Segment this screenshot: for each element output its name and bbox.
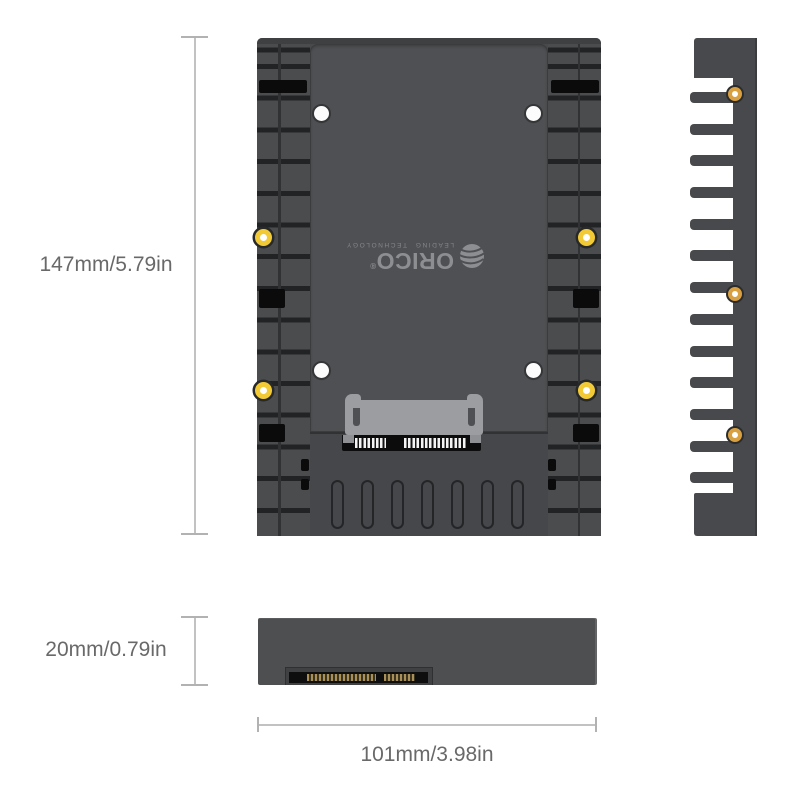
vent-slot xyxy=(259,80,307,93)
brand-name: ORICO® xyxy=(345,249,454,272)
front-view: ORICO® LEADING TECHNOLOGY xyxy=(257,38,601,536)
comb-slot xyxy=(481,480,494,529)
dimension-cap xyxy=(181,616,208,618)
sata-end-tab xyxy=(343,435,354,443)
vent-slot xyxy=(259,424,285,442)
vent-slot xyxy=(551,80,599,93)
dimension-line xyxy=(194,37,196,535)
mounting-hole-white xyxy=(526,106,541,121)
rib-tooth xyxy=(690,155,736,166)
left-mounting-rail xyxy=(257,44,310,536)
sata-end-tab xyxy=(470,435,481,443)
sata-pin-strip xyxy=(342,435,481,451)
thickness-dimension-label: 20mm/0.79in xyxy=(20,638,192,662)
sata-power-pins xyxy=(307,674,376,681)
mounting-hole-white xyxy=(526,363,541,378)
product-dimensions-diagram: ORICO® LEADING TECHNOLOGY xyxy=(0,0,800,800)
dimension-cap xyxy=(181,684,208,686)
vent-slot xyxy=(573,424,599,442)
vent-slot xyxy=(301,459,309,471)
comb-slot xyxy=(511,480,524,529)
brand-logo: ORICO® LEADING TECHNOLOGY xyxy=(343,238,485,274)
right-mounting-rail xyxy=(548,44,601,536)
side-view xyxy=(690,38,757,536)
height-dimension-label: 147mm/5.79in xyxy=(20,253,192,277)
dimension-line xyxy=(257,724,597,726)
rib-tooth xyxy=(690,187,736,198)
mounting-hole-white xyxy=(314,363,329,378)
screw-eyelet-gold xyxy=(728,428,742,442)
sata-connector-recess xyxy=(285,667,433,685)
screw-eyelet-gold xyxy=(578,229,595,246)
sata-latch-notch xyxy=(468,408,475,426)
screw-eyelet-gold xyxy=(728,87,742,101)
sata-latch-notch xyxy=(353,408,360,426)
brand-tagline: LEADING TECHNOLOGY xyxy=(345,240,454,247)
rib-tooth xyxy=(690,346,736,357)
rib-tooth xyxy=(690,219,736,230)
rib-tooth xyxy=(690,250,736,261)
mounting-hole-white xyxy=(314,106,329,121)
vent-slot xyxy=(259,289,285,308)
screw-eyelet-gold xyxy=(578,382,595,399)
vent-slot xyxy=(548,459,556,471)
rib-tooth xyxy=(690,377,736,388)
sata-data-pins xyxy=(355,438,386,448)
brand-text: ORICO® LEADING TECHNOLOGY xyxy=(345,240,454,272)
rib-tooth xyxy=(690,124,736,135)
rib-tooth xyxy=(690,472,736,483)
bottom-view xyxy=(258,618,597,685)
screw-eyelet-gold xyxy=(255,382,272,399)
comb-slot xyxy=(451,480,464,529)
vent-slot xyxy=(301,479,309,490)
registered-mark: ® xyxy=(370,261,376,270)
rib-tooth xyxy=(690,314,736,325)
comb-slot xyxy=(421,480,434,529)
comb-slot xyxy=(331,480,344,529)
dimension-cap xyxy=(595,717,597,732)
rib-tooth xyxy=(690,441,736,452)
width-dimension-label: 101mm/3.98in xyxy=(341,743,513,767)
dimension-cap xyxy=(257,717,259,732)
sata-pin-bar xyxy=(289,672,428,683)
dimension-line xyxy=(194,617,196,686)
vent-slot xyxy=(573,289,599,308)
rib-tooth xyxy=(690,409,736,420)
sata-data-pins xyxy=(384,674,415,681)
comb-slot xyxy=(391,480,404,529)
globe-icon xyxy=(459,243,485,269)
vent-slot xyxy=(548,479,556,490)
sata-power-pins xyxy=(404,438,466,448)
dimension-cap xyxy=(181,36,208,38)
comb-slot xyxy=(361,480,374,529)
dimension-cap xyxy=(181,533,208,535)
sata-connector-body xyxy=(345,400,483,435)
screw-eyelet-gold xyxy=(255,229,272,246)
screw-eyelet-gold xyxy=(728,287,742,301)
